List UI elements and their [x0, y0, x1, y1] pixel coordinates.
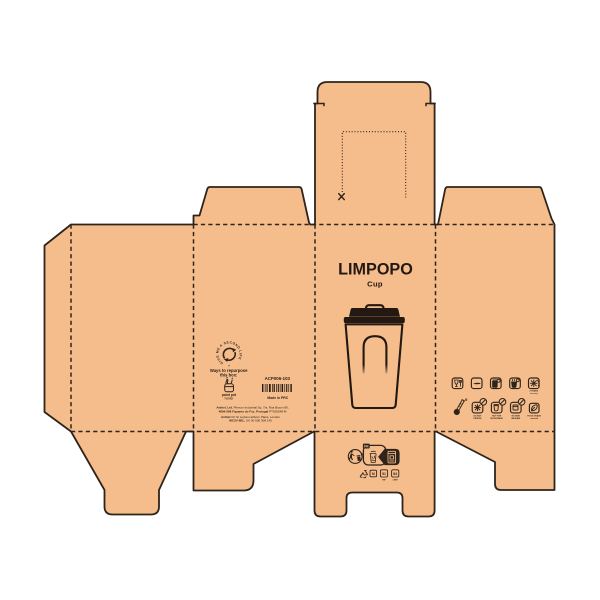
- svg-text:FR: FR: [364, 445, 369, 449]
- svg-text:FREEZE: FREEZE: [474, 418, 483, 420]
- svg-text:M: M: [372, 472, 375, 476]
- svg-text:WC2V 6BL, UK 00 500 308 140: WC2V 6BL, UK 00 500 308 140: [229, 419, 272, 423]
- svg-text:holder: holder: [225, 397, 235, 401]
- svg-text:Made in PRC: Made in PRC: [267, 396, 288, 400]
- svg-text:warranty: warranty: [530, 392, 538, 395]
- svg-text:Cup: Cup: [367, 279, 383, 288]
- svg-text:4806-268 Figrante do Foz, Port: 4806-268 Figrante do Foz, Portugal PT035…: [219, 409, 287, 413]
- svg-text:51: 51: [382, 472, 386, 476]
- svg-text:WASHER: WASHER: [511, 417, 520, 420]
- svg-text:ACP006-103: ACP006-103: [265, 376, 291, 381]
- svg-text:this box:: this box:: [220, 373, 237, 378]
- svg-text:C/PAP: C/PAP: [393, 478, 399, 481]
- svg-text:LIMPOPO: LIMPOPO: [338, 260, 413, 278]
- svg-text:material: material: [530, 417, 538, 420]
- svg-text:84: 84: [393, 472, 397, 476]
- svg-text:MICROWAVE: MICROWAVE: [490, 417, 503, 420]
